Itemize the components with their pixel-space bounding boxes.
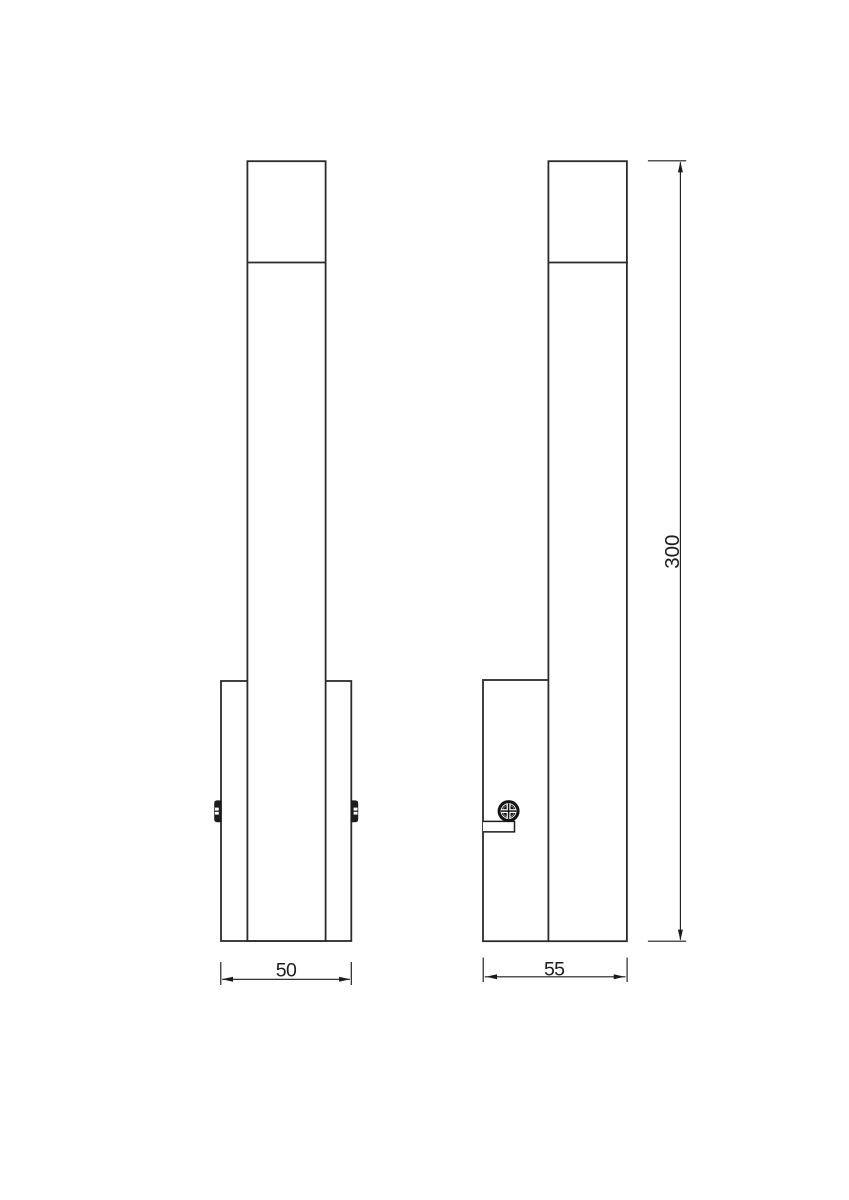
svg-text:55: 55 — [544, 958, 565, 980]
svg-text:300: 300 — [661, 535, 684, 569]
svg-text:50: 50 — [276, 960, 297, 982]
